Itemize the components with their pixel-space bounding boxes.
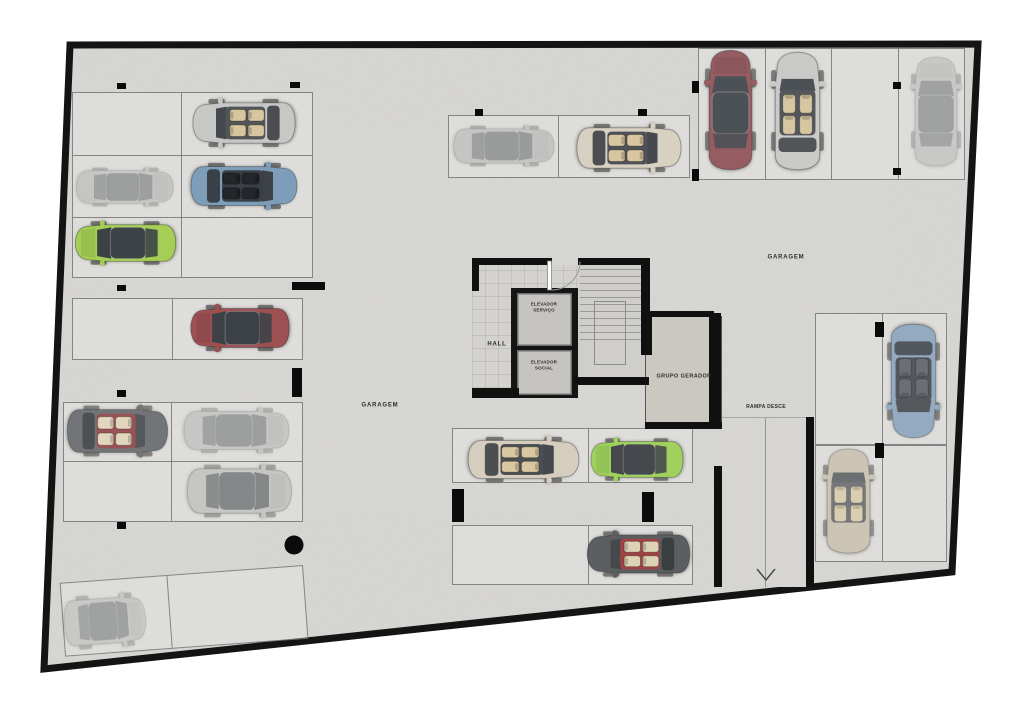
car — [60, 589, 150, 653]
car — [188, 303, 292, 353]
stall-divider-line — [166, 576, 172, 648]
stall-divider-line — [882, 446, 883, 561]
car — [465, 435, 582, 484]
label-hall: HALL — [487, 341, 506, 348]
column-pillar — [117, 285, 126, 291]
wall-segment — [573, 377, 649, 385]
garage-floor-plan: HALL ELEVADOR SERVIÇO ELEVADOR SOCIAL GR… — [0, 0, 1024, 727]
car — [188, 161, 300, 211]
car — [703, 47, 758, 173]
car — [588, 436, 685, 482]
wall-segment — [578, 258, 649, 265]
stall-divider-line — [181, 93, 182, 277]
car — [190, 97, 298, 149]
wall-segment — [709, 313, 721, 424]
wall-segment — [645, 311, 714, 317]
column-pillar — [292, 282, 325, 290]
label-elevador-servico: ELEVADOR SERVIÇO — [531, 301, 557, 312]
ramp-corridor — [722, 417, 806, 587]
stall-divider-line — [765, 49, 766, 179]
car — [909, 54, 963, 169]
column-pillar — [475, 109, 483, 116]
label-garagem-left: GARAGEM — [362, 402, 399, 409]
stall-divider-line — [172, 299, 173, 359]
label-rampa-desce: RAMPA DESCE — [746, 404, 786, 410]
stall-divider-line — [558, 116, 559, 177]
wall-segment — [472, 258, 552, 265]
car — [821, 446, 876, 556]
column-pillar — [290, 82, 300, 88]
column-pillar — [875, 322, 884, 337]
column-pillar — [692, 81, 699, 93]
stair-rail — [594, 301, 626, 365]
car — [885, 321, 942, 441]
stall-divider-line — [171, 403, 172, 521]
column-pillar — [875, 443, 884, 458]
car — [584, 529, 692, 578]
car — [74, 166, 176, 208]
stall-divider-line — [73, 155, 312, 156]
column-pillar — [893, 82, 901, 89]
wall-segment — [645, 422, 722, 429]
label-elevador-social: ELEVADOR SOCIAL — [531, 359, 557, 370]
car — [769, 49, 826, 173]
column-pillar — [117, 390, 126, 397]
column-pillar — [692, 169, 699, 181]
car — [184, 462, 294, 519]
column-pillar — [117, 83, 126, 89]
car — [72, 219, 178, 266]
car — [574, 122, 684, 174]
wall-segment — [472, 258, 479, 291]
label-garagem-right: GARAGEM — [768, 254, 805, 261]
column-pillar — [292, 368, 302, 397]
column-pillar — [117, 522, 126, 529]
social-elevator-cab — [517, 350, 572, 395]
stall-divider-line — [73, 217, 312, 218]
column-pillar — [638, 109, 647, 116]
ramp-lane-divider — [765, 418, 766, 587]
wall-segment — [472, 388, 519, 398]
car — [451, 124, 557, 168]
car — [64, 403, 170, 458]
car — [181, 406, 292, 455]
label-grupo-gerador: GRUPO GERADOR — [656, 374, 711, 381]
wall-segment — [641, 313, 652, 355]
column-pillar — [642, 492, 654, 522]
column-pillar — [893, 168, 901, 175]
wall-segment — [641, 258, 650, 319]
column-pillar — [452, 489, 464, 522]
stairwell — [578, 265, 647, 383]
stall-divider-line — [831, 49, 832, 179]
wall-segment — [806, 417, 814, 587]
stall-divider-line — [898, 49, 899, 179]
wall-segment — [714, 466, 722, 587]
